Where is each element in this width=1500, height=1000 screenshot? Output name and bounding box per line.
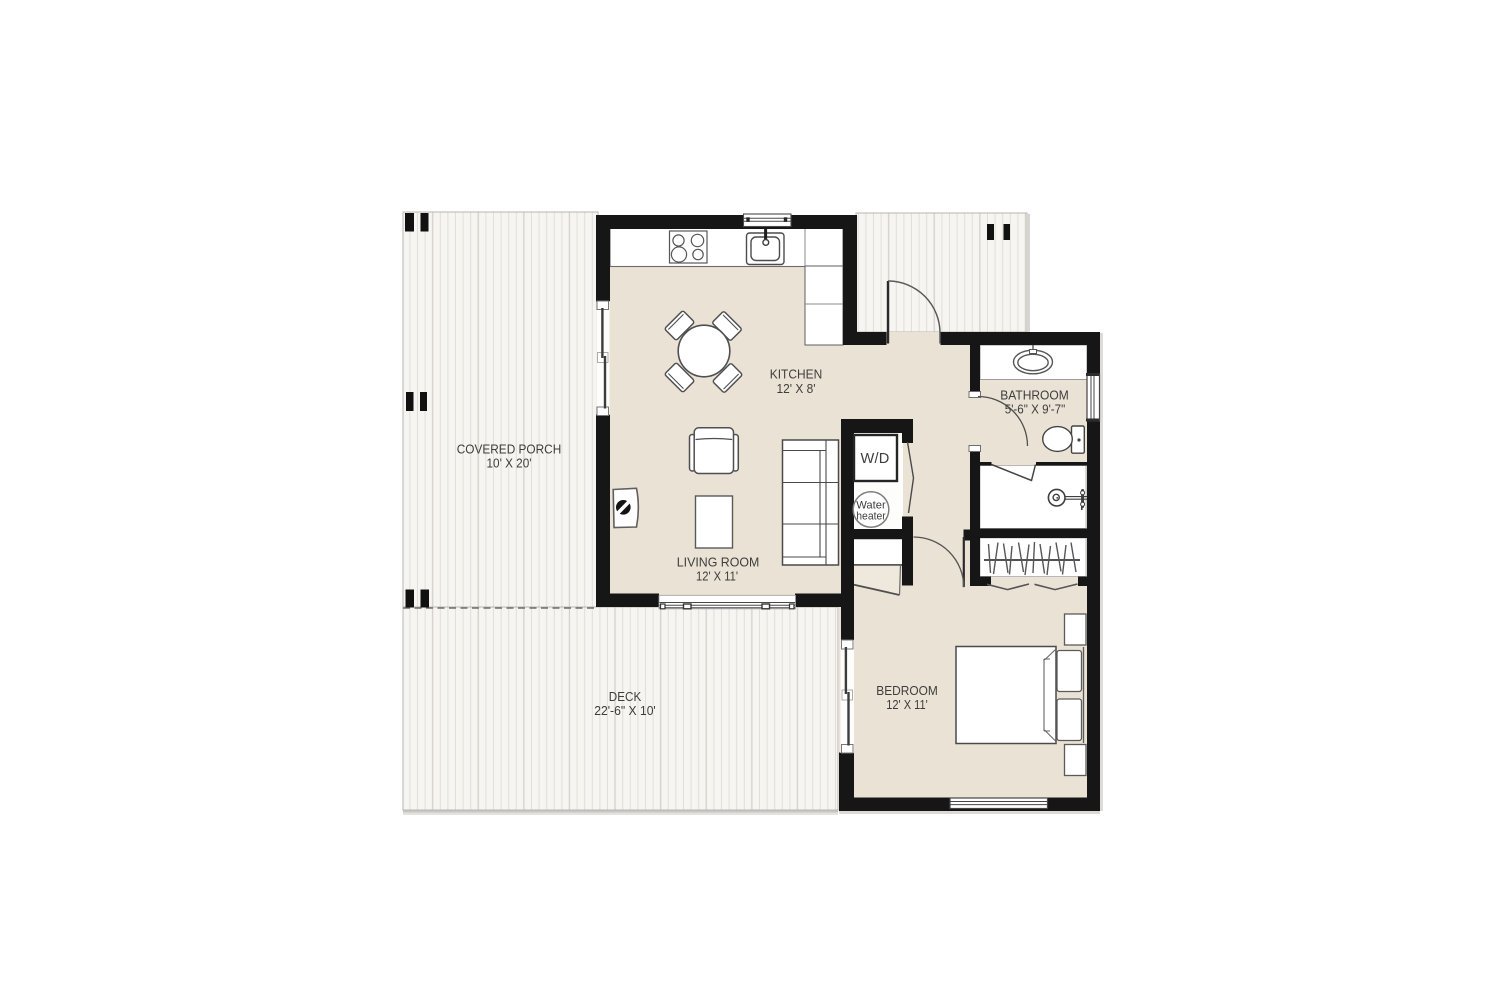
svg-text:BEDROOM: BEDROOM	[876, 683, 938, 698]
svg-text:10' X 20': 10' X 20'	[487, 456, 532, 471]
svg-text:12' X 11': 12' X 11'	[886, 697, 928, 712]
svg-text:W/D: W/D	[861, 450, 890, 467]
svg-text:heater: heater	[856, 511, 886, 523]
svg-text:22'-6" X 10': 22'-6" X 10'	[594, 703, 656, 718]
svg-text:DECK: DECK	[609, 689, 642, 704]
svg-text:5'-6" X 9'-7": 5'-6" X 9'-7"	[1005, 402, 1066, 417]
svg-text:LIVING ROOM: LIVING ROOM	[677, 555, 760, 570]
svg-text:12' X 11': 12' X 11'	[696, 569, 738, 584]
svg-text:BATHROOM: BATHROOM	[1000, 388, 1069, 403]
svg-text:12' X 8': 12' X 8'	[777, 381, 816, 396]
svg-text:COVERED PORCH: COVERED PORCH	[457, 442, 562, 457]
svg-text:KITCHEN: KITCHEN	[770, 367, 823, 382]
